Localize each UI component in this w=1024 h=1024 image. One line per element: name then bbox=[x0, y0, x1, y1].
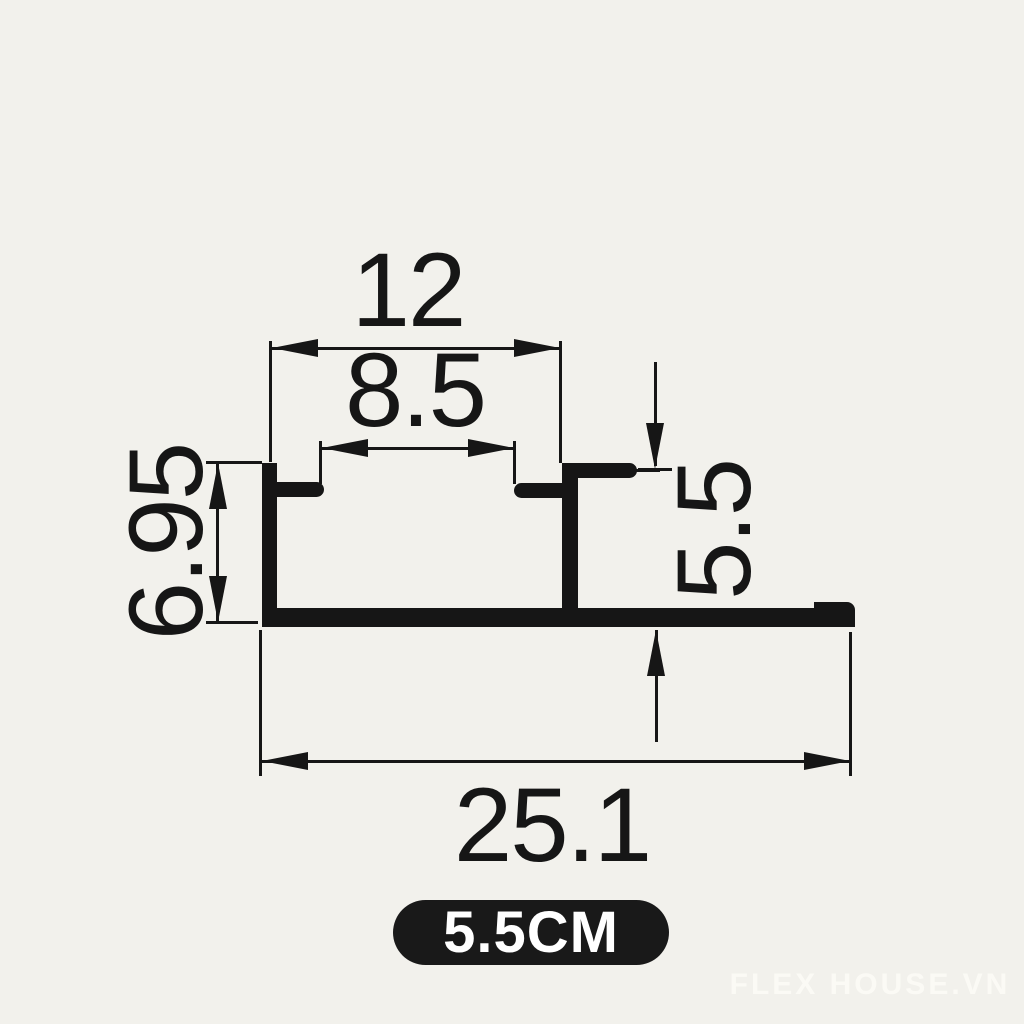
profile-top-flange bbox=[562, 463, 637, 478]
arrowhead-up bbox=[647, 630, 665, 676]
dimension-line bbox=[262, 760, 850, 763]
dim-slot-width-label: 8.5 bbox=[315, 340, 515, 440]
dim-overall-width-label: 25.1 bbox=[402, 770, 702, 880]
size-badge-label: 5.5CM bbox=[443, 899, 619, 966]
dim-left-height-label: 6.95 bbox=[111, 427, 221, 657]
profile-base-end-hook bbox=[814, 602, 855, 627]
profile-left-lip bbox=[276, 482, 324, 497]
arrowhead-left bbox=[272, 339, 318, 357]
profile-center-lip bbox=[514, 483, 563, 498]
extension-line bbox=[559, 341, 562, 463]
arrowhead-right bbox=[514, 339, 560, 357]
arrowhead-left bbox=[262, 752, 308, 770]
profile-dimension-diagram: 12 8.5 6.95 5.5 25.1 5.5CM bbox=[0, 0, 1024, 1024]
dim-right-height-label: 5.5 bbox=[659, 430, 769, 630]
profile-center-wall bbox=[562, 463, 578, 626]
extension-line bbox=[269, 341, 272, 462]
size-badge: 5.5CM bbox=[393, 900, 669, 965]
dim-top-width-label: 12 bbox=[308, 240, 508, 340]
arrowhead-right bbox=[804, 752, 850, 770]
profile-left-wall bbox=[262, 463, 277, 626]
watermark: FLEX HOUSE.VN bbox=[715, 965, 1024, 1005]
